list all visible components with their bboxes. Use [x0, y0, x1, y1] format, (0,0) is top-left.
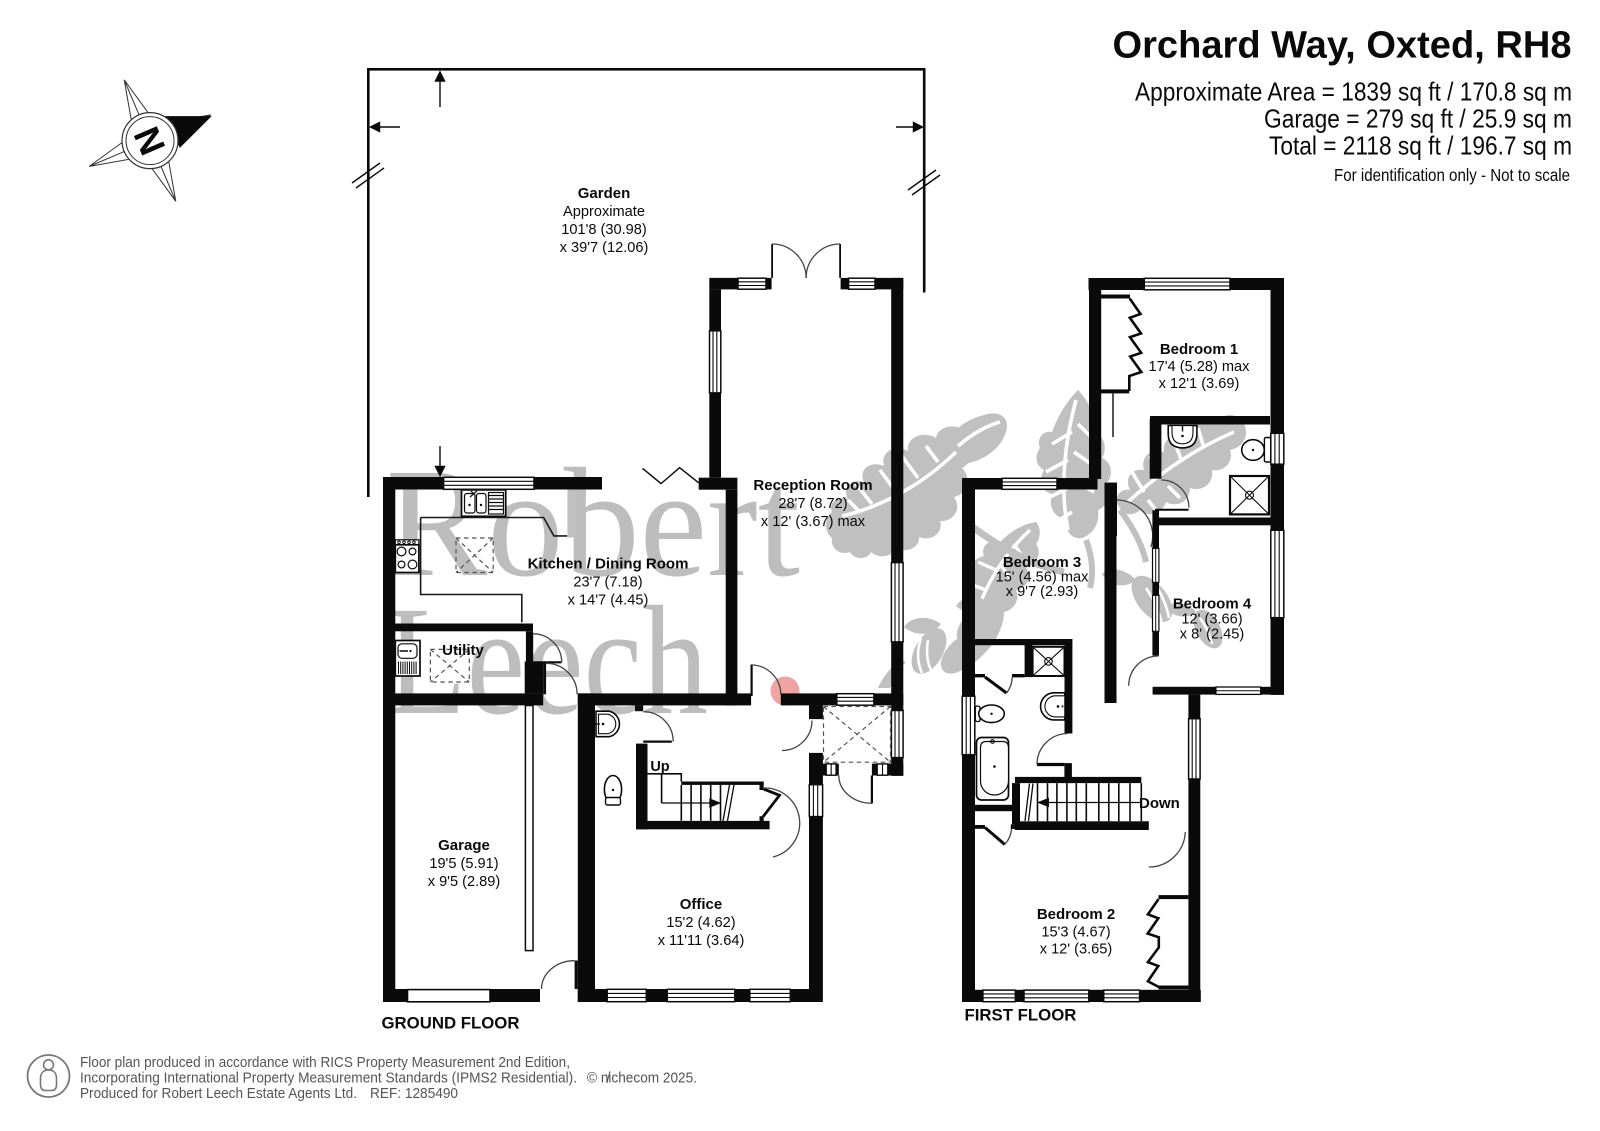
svg-text:Total = 2118 sq ft / 196.7 sq: Total = 2118 sq ft / 196.7 sq m	[1269, 131, 1572, 161]
svg-text:x 12' (3.67) max: x 12' (3.67) max	[761, 514, 866, 530]
svg-text:GROUND FLOOR: GROUND FLOOR	[382, 1014, 520, 1033]
svg-text:28'7 (8.72): 28'7 (8.72)	[778, 496, 847, 512]
svg-text:x 14'7 (4.45): x 14'7 (4.45)	[568, 593, 649, 609]
svg-text:© n̸ichecom 2025.: © n̸ichecom 2025.	[587, 1070, 697, 1087]
svg-text:Bedroom 4: Bedroom 4	[1173, 596, 1252, 613]
svg-text:x 39'7 (12.06): x 39'7 (12.06)	[560, 240, 649, 256]
svg-text:x 11'11 (3.64): x 11'11 (3.64)	[658, 933, 745, 949]
svg-text:Utility: Utility	[442, 642, 484, 659]
svg-text:For identification only - Not: For identification only - Not to scale	[1334, 165, 1570, 185]
svg-text:17'4 (5.28) max: 17'4 (5.28) max	[1149, 359, 1251, 375]
svg-text:x 12' (3.65): x 12' (3.65)	[1040, 942, 1113, 958]
svg-text:x 12'1 (3.69): x 12'1 (3.69)	[1159, 376, 1240, 392]
svg-text:15'3 (4.67): 15'3 (4.67)	[1041, 925, 1110, 941]
svg-text:x 9'5 (2.89): x 9'5 (2.89)	[428, 874, 501, 890]
svg-text:x 9'7 (2.93): x 9'7 (2.93)	[1006, 584, 1079, 600]
svg-text:Floor plan produced in accorda: Floor plan produced in accordance with R…	[80, 1054, 570, 1071]
svg-text:Bedroom 3: Bedroom 3	[1003, 554, 1081, 571]
svg-text:Garage: Garage	[438, 837, 490, 854]
svg-text:Garage = 279 sq ft / 25.9 sq m: Garage = 279 sq ft / 25.9 sq m	[1264, 104, 1572, 134]
svg-text:15'2 (4.62): 15'2 (4.62)	[666, 915, 735, 931]
svg-text:Bedroom 2: Bedroom 2	[1037, 906, 1115, 923]
svg-text:Orchard Way, Oxted, RH8: Orchard Way, Oxted, RH8	[1113, 25, 1572, 67]
svg-text:Down: Down	[1139, 795, 1180, 812]
svg-text:Approximate Area = 1839 sq ft: Approximate Area = 1839 sq ft / 170.8 sq…	[1135, 77, 1572, 107]
svg-text:23'7 (7.18): 23'7 (7.18)	[573, 575, 642, 591]
svg-text:Incorporating International Pr: Incorporating International Property Mea…	[80, 1070, 577, 1087]
svg-text:Produced for Robert Leech Esta: Produced for Robert Leech Estate Agents …	[80, 1085, 357, 1102]
svg-text:Reception Room: Reception Room	[753, 477, 872, 494]
svg-text:REF: 1285490: REF: 1285490	[370, 1085, 458, 1102]
svg-text:12' (3.66): 12' (3.66)	[1181, 612, 1242, 628]
svg-text:101'8 (30.98): 101'8 (30.98)	[561, 222, 647, 238]
svg-text:19'5 (5.91): 19'5 (5.91)	[429, 856, 498, 872]
svg-text:Garden: Garden	[578, 185, 631, 202]
svg-text:Bedroom 1: Bedroom 1	[1160, 341, 1238, 358]
svg-text:Approximate: Approximate	[563, 204, 645, 220]
svg-text:Up: Up	[650, 759, 669, 775]
svg-text:Office: Office	[680, 896, 723, 913]
svg-text:x 8' (2.45): x 8' (2.45)	[1180, 627, 1244, 643]
svg-text:Kitchen / Dining Room: Kitchen / Dining Room	[528, 556, 689, 573]
svg-text:Leech: Leech	[386, 574, 708, 747]
svg-text:FIRST FLOOR: FIRST FLOOR	[965, 1005, 1077, 1024]
